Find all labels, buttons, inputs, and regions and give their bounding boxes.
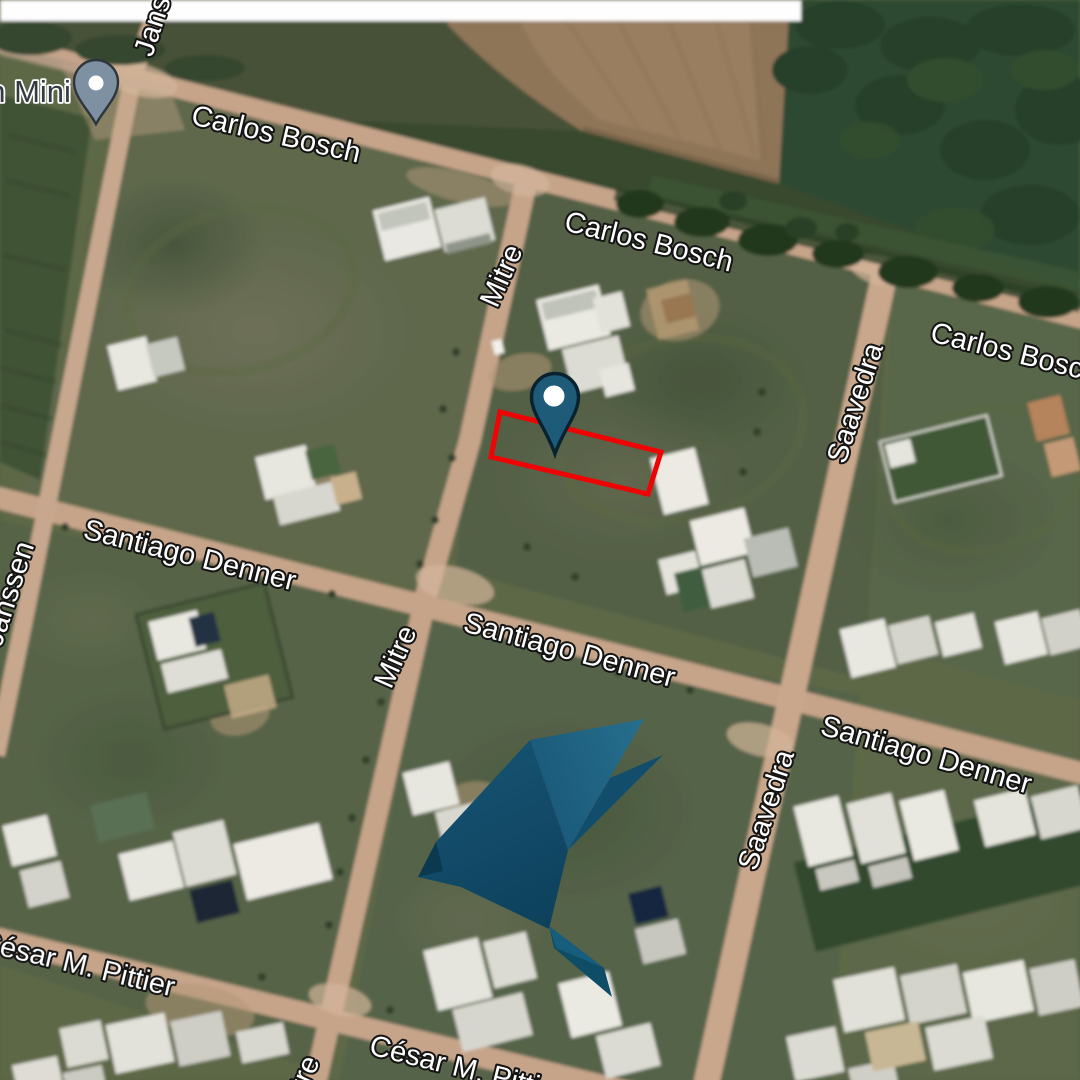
svg-text:án Mini: án Mini (0, 74, 71, 109)
